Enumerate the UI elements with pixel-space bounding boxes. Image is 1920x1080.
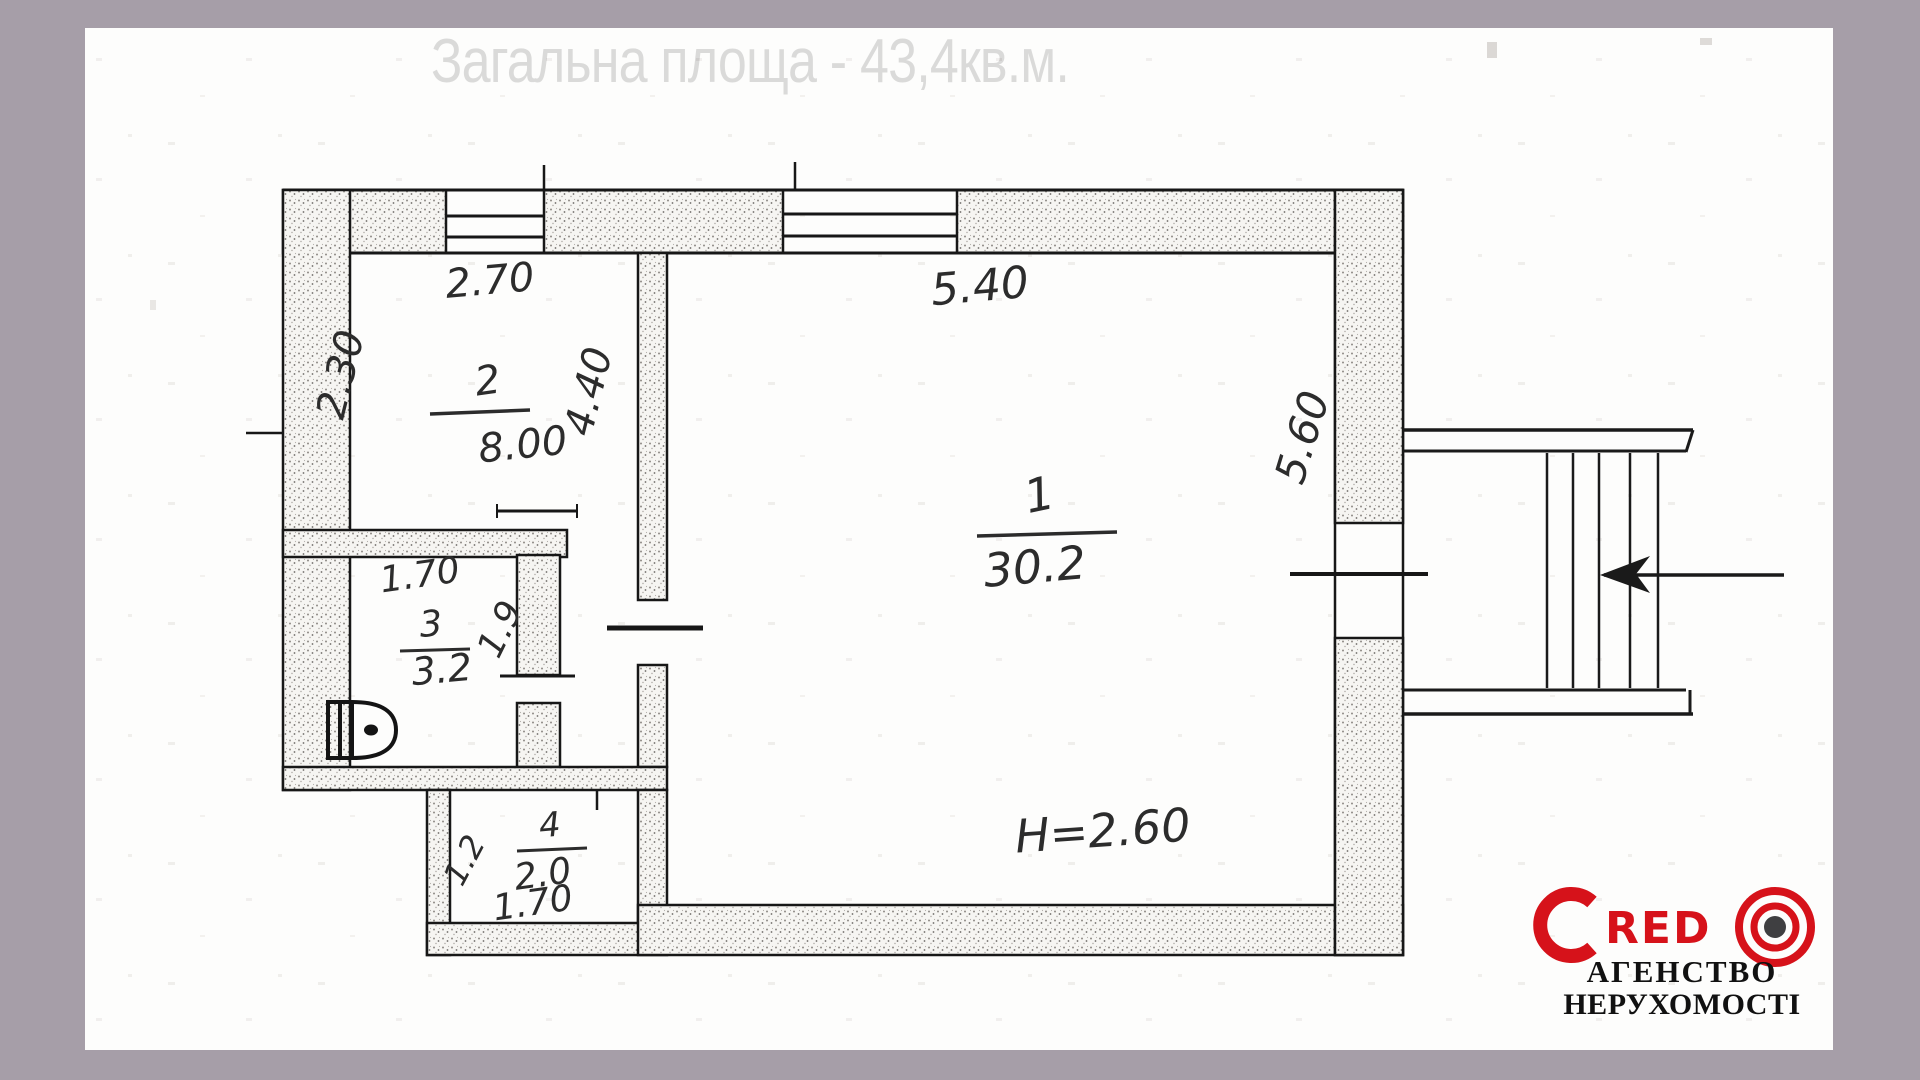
logo-agency-line1: АГЕНСТВО: [1587, 954, 1778, 989]
wall-bottom: [638, 905, 1403, 955]
logo-agency-line2: НЕРУХОМОСТІ: [1563, 988, 1800, 1021]
wall-annex-bottom: [427, 923, 667, 955]
wall-right-upper: [1335, 190, 1403, 523]
scan-artifact: [150, 300, 156, 310]
scan-artifact: [1487, 42, 1497, 58]
sink-drain-dot: [364, 725, 378, 736]
dim-room1-width: 5.40: [929, 257, 1031, 316]
wall-room2-room1-lower: [638, 665, 667, 767]
room1-area: 30.2: [981, 535, 1088, 598]
wall-annex-right: [638, 790, 667, 923]
room4-number: 4: [537, 805, 562, 847]
dim-room2-width: 2.70: [443, 254, 536, 308]
room3-number: 3: [418, 603, 444, 646]
logo-red-text: RED: [1605, 903, 1711, 954]
wall-room2-room1-upper: [638, 253, 667, 600]
room2-area: 8.00: [476, 417, 569, 472]
logo-target-center-dot: [1764, 916, 1786, 938]
wall-room3-room4: [283, 767, 667, 790]
room3-area: 3.2: [410, 645, 474, 694]
room4-area: 2.0: [512, 850, 574, 899]
floor-plan-drawing: 2.70 2.30 4.40 5.40 5.60 1.70 1.9 1.70 1…: [0, 0, 1920, 1080]
scan-artifact: [1700, 38, 1712, 45]
wall-top-middle: [544, 190, 783, 253]
wall-right-lower: [1335, 638, 1403, 955]
scanned-floorplan-document: { "page": { "title": "Загальна площа - 4…: [0, 0, 1920, 1080]
wall-room2-room3: [283, 530, 567, 557]
wall-room3-lower: [517, 703, 560, 767]
